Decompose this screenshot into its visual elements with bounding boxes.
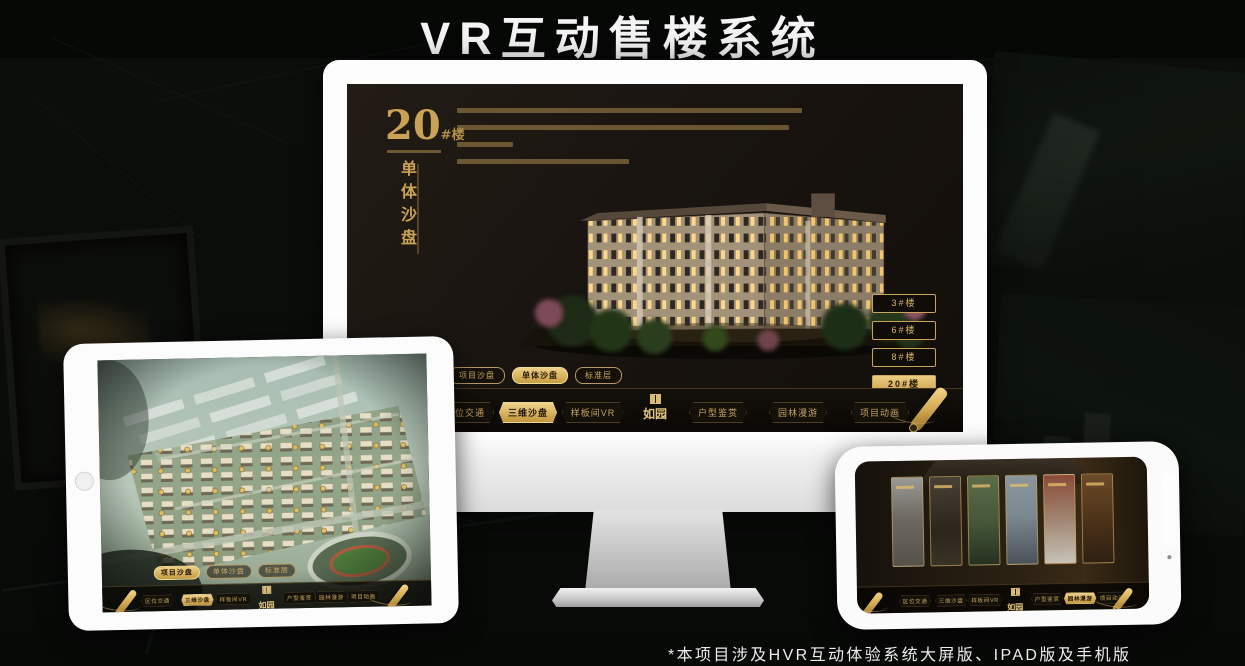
monitor-stand-base <box>552 588 764 607</box>
brand-logo[interactable]: 如园 <box>1007 588 1023 614</box>
nav-item[interactable]: 样板间VR <box>562 402 625 423</box>
block-number: 20#楼 <box>385 106 465 146</box>
home-button[interactable] <box>75 472 94 491</box>
nav-item[interactable]: 园林漫游 <box>769 402 827 423</box>
gallery-panel[interactable] <box>929 476 963 567</box>
scroll-ornament-icon <box>114 589 138 613</box>
nav-item[interactable]: 户型鉴赏 <box>689 402 747 423</box>
nav-item[interactable]: 三维沙盘 <box>181 594 213 606</box>
nav-item[interactable]: 三维沙盘 <box>499 402 557 423</box>
nav-item[interactable]: 区位交通 <box>899 595 931 607</box>
subtab[interactable]: 单体沙盘 <box>206 564 252 579</box>
page-title: VR互动售楼系统 <box>0 2 1245 67</box>
subtab[interactable]: 单体沙盘 <box>512 367 568 384</box>
subtab[interactable]: 项目沙盘 <box>154 565 200 580</box>
nav-item[interactable]: 样板间VR <box>968 594 1003 606</box>
logo-seal-icon <box>649 394 660 404</box>
subtab[interactable]: 项目沙盘 <box>449 367 505 384</box>
gallery-panel[interactable] <box>1005 474 1039 565</box>
monitor-stand <box>585 510 731 592</box>
scroll-ornament-icon <box>1111 587 1133 614</box>
subtab-row: 项目沙盘 单体沙盘 标准层 <box>154 563 296 580</box>
background-photo <box>976 51 1245 288</box>
main-navbar: 区位交通 三维沙盘 样板间VR 如园 户型鉴赏 园林漫游 项目动画 <box>857 582 1149 614</box>
gallery-panel[interactable] <box>1081 473 1115 564</box>
block-name: 单体沙盘 <box>395 160 419 252</box>
gallery-panel[interactable] <box>891 476 925 567</box>
floor-button[interactable]: 6#楼 <box>872 321 936 340</box>
subtab[interactable]: 标准层 <box>575 367 622 384</box>
nav-item[interactable]: 园林漫游 <box>315 591 347 603</box>
floor-button[interactable]: 8#楼 <box>872 348 936 367</box>
phone-screen: 区位交通 三维沙盘 样板间VR 如园 户型鉴赏 园林漫游 项目动画 <box>855 457 1150 614</box>
nav-item[interactable]: 户型鉴赏 <box>1031 593 1063 605</box>
brand-logo[interactable]: 如园 <box>643 394 667 422</box>
subtab[interactable]: 标准层 <box>258 563 296 578</box>
tablet-device: 项目沙盘 单体沙盘 标准层 区位交通 三维沙盘 样板间VR 如园 户型鉴赏 园林… <box>63 336 459 631</box>
main-navbar: 区位交通 三维沙盘 样板间VR 如园 户型鉴赏 园林漫游 项目动画 <box>102 579 431 612</box>
page: VR互动售楼系统 20#楼 单体沙盘 <box>0 0 1245 666</box>
logo-seal-icon <box>1010 588 1019 596</box>
footnote: *本项目涉及HVR互动体验系统大屏版、IPAD版及手机版 <box>668 641 1131 665</box>
floor-button[interactable]: 3#楼 <box>872 294 936 313</box>
phone-device: 区位交通 三维沙盘 样板间VR 如园 户型鉴赏 园林漫游 项目动画 <box>834 441 1181 630</box>
scroll-ornament-icon <box>386 583 410 611</box>
menu-gallery <box>891 473 1115 567</box>
logo-seal-icon <box>262 586 271 594</box>
brand-logo[interactable]: 如园 <box>258 586 275 612</box>
gallery-panel[interactable] <box>967 475 1001 566</box>
scroll-ornament-icon <box>861 591 883 614</box>
nav-item[interactable]: 样板间VR <box>216 593 251 606</box>
nav-item[interactable]: 三维沙盘 <box>935 594 967 606</box>
nav-item[interactable]: 户型鉴赏 <box>283 591 315 603</box>
subtab-row: 项目沙盘 单体沙盘 标准层 <box>449 367 622 384</box>
phone-frame-detail <box>1162 473 1176 547</box>
nav-item[interactable]: 区位交通 <box>141 594 173 606</box>
camera-icon <box>1167 555 1171 559</box>
gallery-panel[interactable] <box>1043 474 1077 565</box>
tablet-screen: 项目沙盘 单体沙盘 标准层 区位交通 三维沙盘 样板间VR 如园 户型鉴赏 园林… <box>97 354 431 613</box>
